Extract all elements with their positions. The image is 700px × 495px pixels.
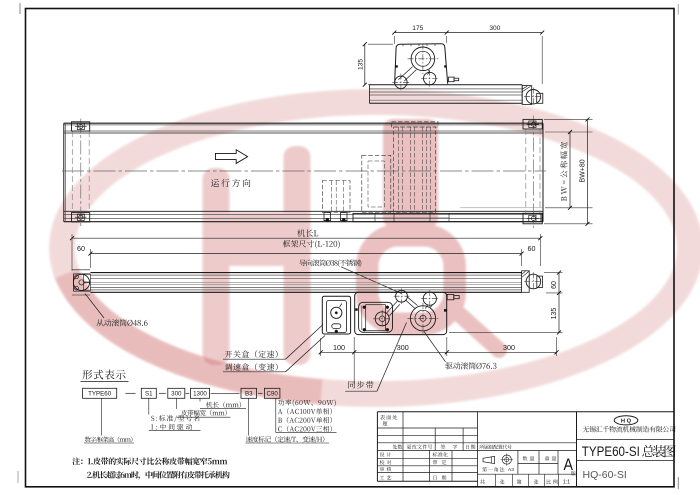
svg-text:H Q: H Q	[621, 419, 632, 425]
svg-text:C90: C90	[266, 391, 278, 398]
svg-text:TYPE60-SI: TYPE60-SI	[582, 444, 640, 459]
svg-text:B3: B3	[245, 391, 253, 398]
svg-text:TYPE60: TYPE60	[88, 391, 112, 398]
svg-text:100: 100	[333, 343, 345, 352]
svg-text:HQ-60-SI: HQ-60-SI	[583, 469, 627, 481]
svg-text:1300: 1300	[193, 391, 207, 398]
svg-text:60: 60	[551, 281, 558, 289]
svg-text:A3: A3	[508, 467, 514, 473]
svg-text:300: 300	[397, 343, 409, 352]
svg-text:135: 135	[357, 59, 364, 70]
svg-text:1:1: 1:1	[563, 480, 570, 486]
svg-text:300: 300	[489, 25, 500, 32]
svg-text:175: 175	[412, 25, 423, 32]
svg-text:135: 135	[551, 308, 558, 320]
svg-text:300: 300	[503, 343, 515, 352]
svg-text:60: 60	[77, 244, 85, 253]
svg-text:BW+80: BW+80	[579, 159, 586, 182]
svg-text:60: 60	[528, 244, 536, 253]
svg-text:300: 300	[171, 391, 182, 398]
svg-text:S1: S1	[145, 391, 153, 398]
